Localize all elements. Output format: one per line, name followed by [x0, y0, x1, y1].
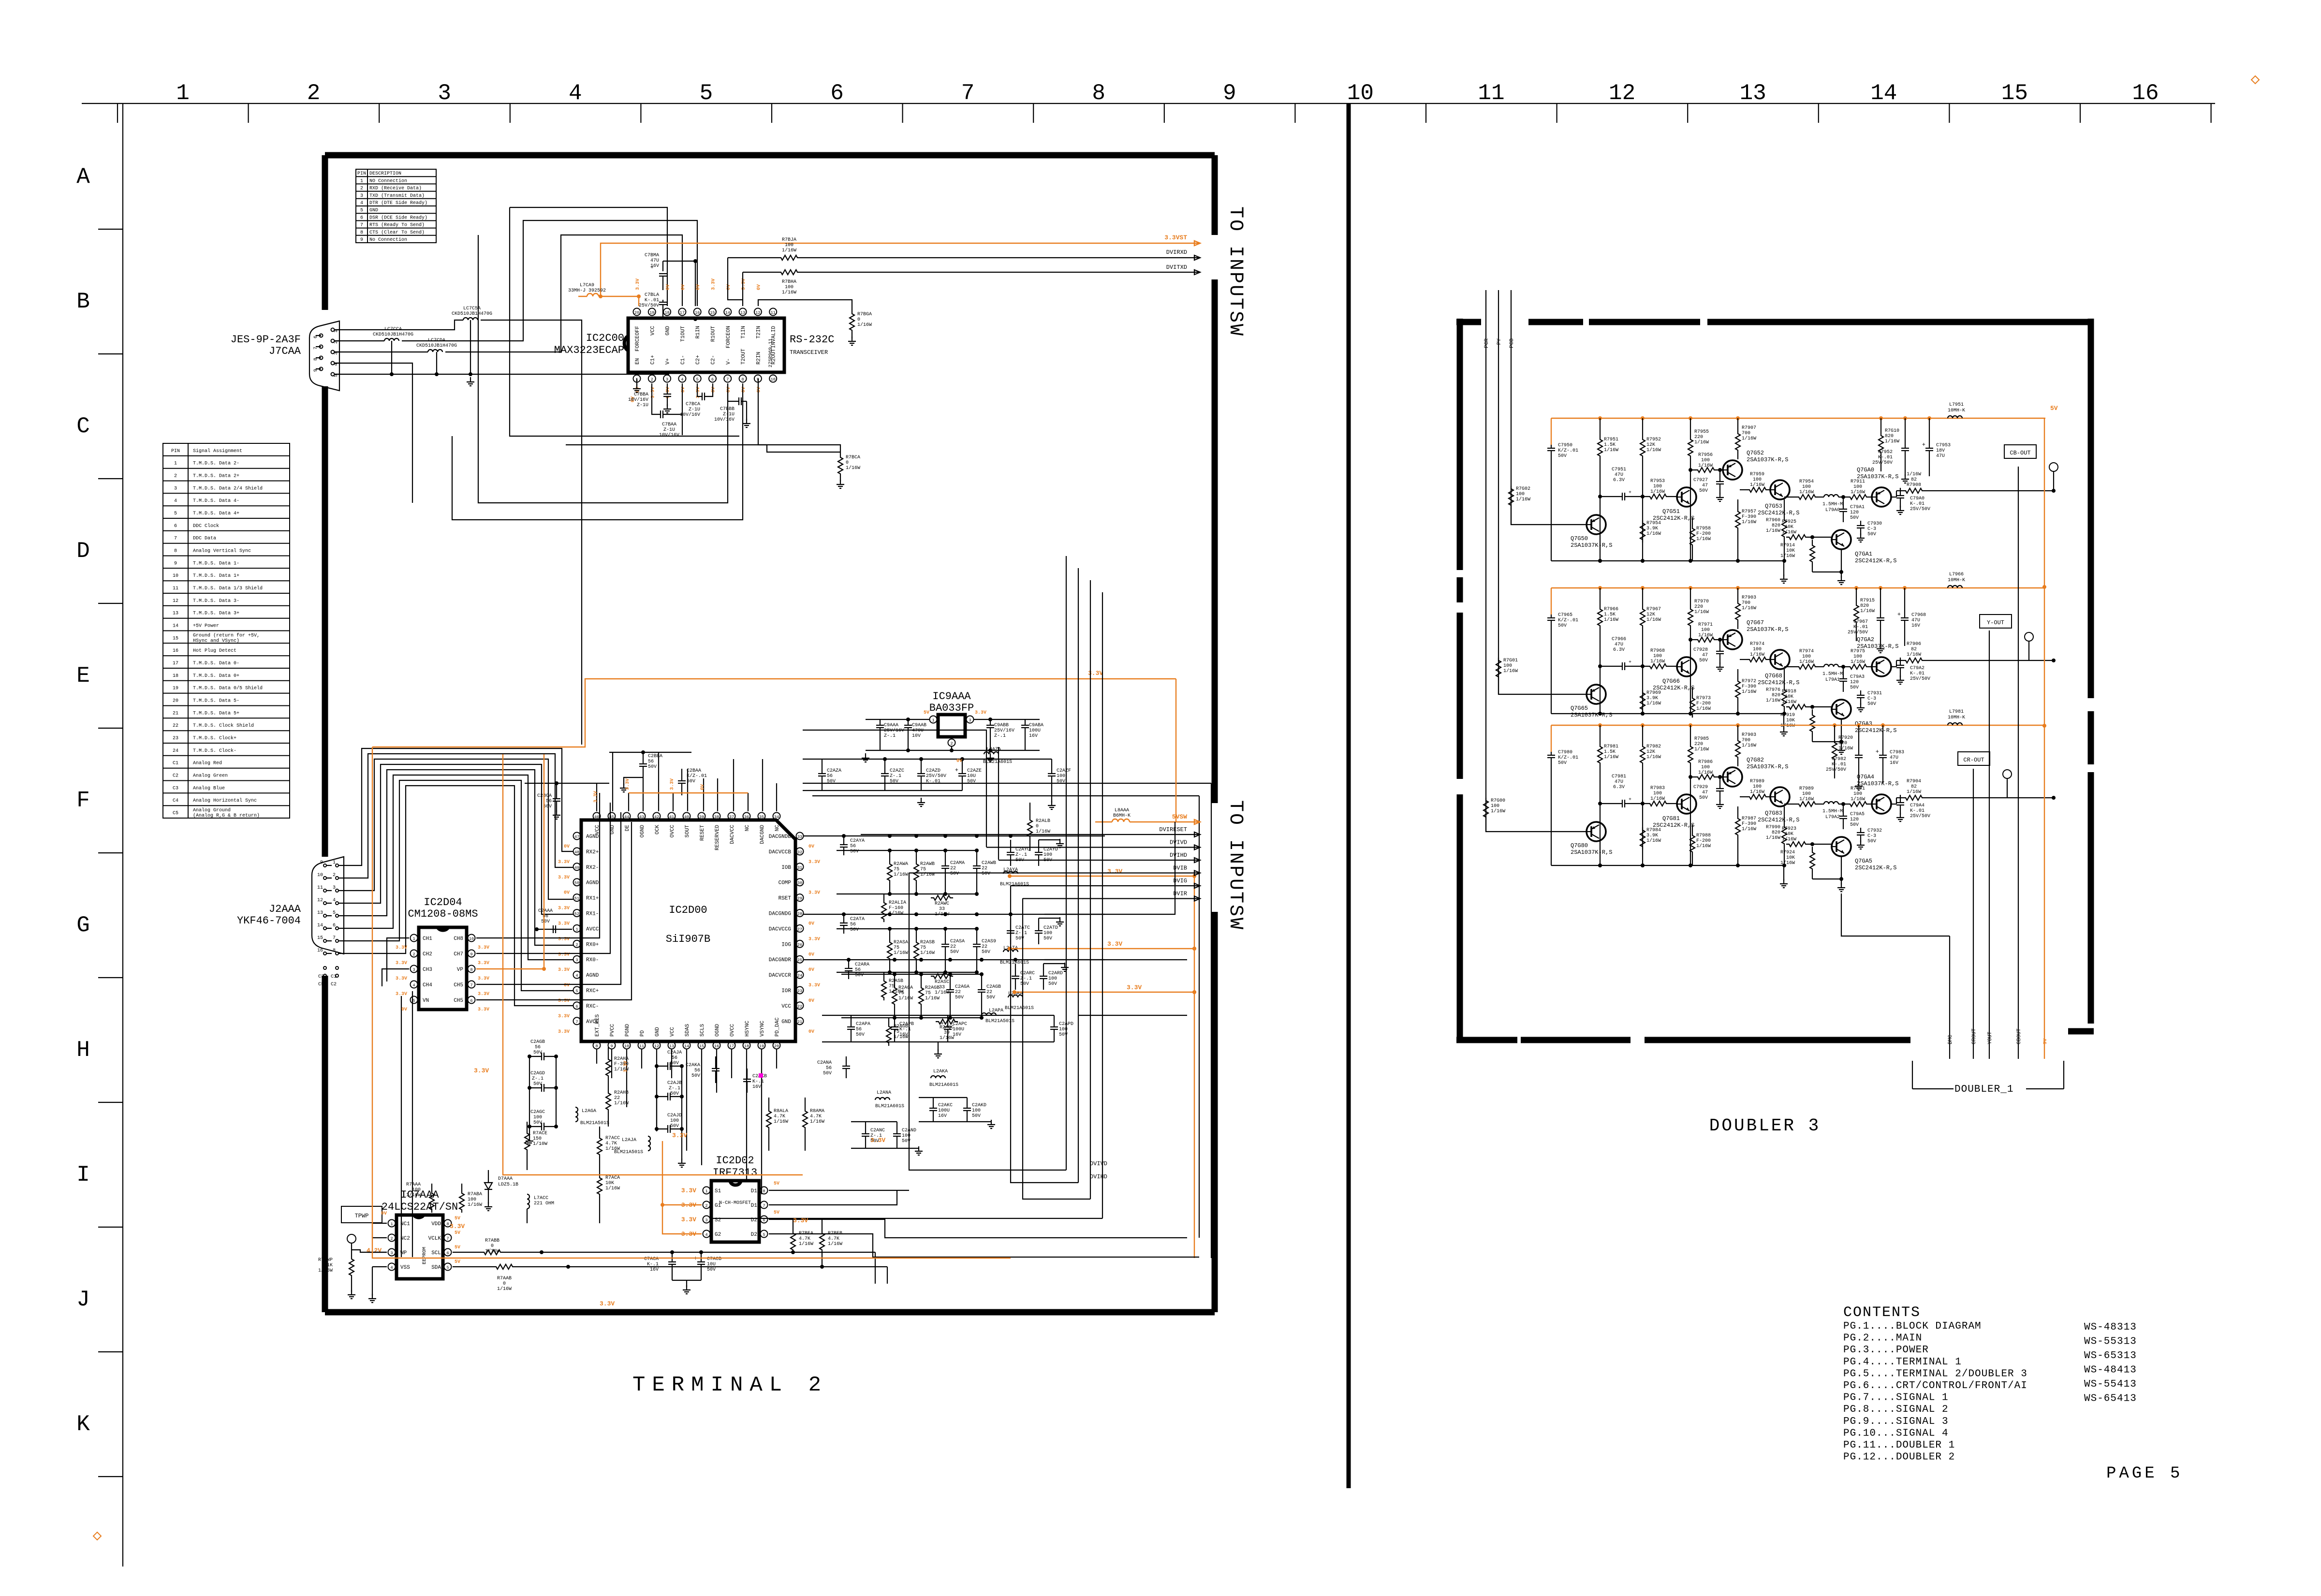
- svg-text:221 OHM: 221 OHM: [534, 1201, 554, 1206]
- svg-text:1.5MH-M: 1.5MH-M: [1822, 809, 1843, 814]
- svg-text:K-.1: K-.1: [647, 1262, 659, 1267]
- svg-text:1/16W: 1/16W: [810, 1119, 824, 1125]
- svg-text:2SC2412K-R,S: 2SC2412K-R,S: [1758, 817, 1799, 823]
- svg-text:NO Connection: NO Connection: [369, 178, 407, 184]
- svg-text:C7981: C7981: [1612, 774, 1626, 779]
- svg-text:K-.01: K-.01: [1878, 455, 1893, 460]
- svg-text:DACGND: DACGND: [760, 825, 765, 844]
- svg-text:100: 100: [1653, 484, 1662, 489]
- svg-text:C4: C4: [173, 798, 178, 804]
- svg-text:21: 21: [173, 711, 178, 716]
- svg-text:50V: 50V: [855, 973, 864, 978]
- svg-text:11: 11: [173, 586, 178, 591]
- svg-text:R2ASA: R2ASA: [894, 940, 908, 945]
- svg-text:C2APC: C2APC: [953, 1022, 967, 1027]
- svg-text:C9AAA: C9AAA: [884, 723, 898, 728]
- svg-text:T.M.D.S. Data 0-: T.M.D.S. Data 0-: [193, 661, 239, 666]
- svg-text:R7ACA: R7ACA: [605, 1175, 620, 1181]
- svg-text:FORCEOFF: FORCEOFF: [635, 326, 641, 351]
- svg-text:30: 30: [797, 881, 802, 886]
- svg-text:Q7G66: Q7G66: [1662, 678, 1680, 685]
- svg-text:33: 33: [939, 985, 945, 990]
- svg-text:10K: 10K: [1785, 525, 1793, 530]
- svg-text:WS-55413: WS-55413: [2084, 1379, 2137, 1390]
- svg-text:33: 33: [939, 907, 945, 912]
- svg-text:INVALID: INVALID: [771, 326, 777, 349]
- svg-text:B: B: [76, 289, 90, 314]
- svg-text:16: 16: [695, 310, 700, 315]
- svg-text:C2-: C2-: [711, 355, 717, 365]
- svg-text:Q7G68: Q7G68: [1765, 673, 1782, 679]
- svg-text:0: 0: [846, 460, 849, 466]
- svg-text:14: 14: [317, 923, 323, 928]
- svg-text:Q7GA0: Q7GA0: [1857, 467, 1874, 473]
- svg-text:C9ABB: C9ABB: [994, 723, 1009, 728]
- svg-text:3.3VST: 3.3VST: [1164, 234, 1187, 241]
- svg-text:C2AKD: C2AKD: [972, 1103, 986, 1108]
- svg-text:CBOUT: CBOUT: [2016, 1028, 2022, 1044]
- svg-text:Analog Red: Analog Red: [193, 761, 222, 766]
- svg-text:+: +: [1629, 797, 1631, 803]
- svg-text:18: 18: [173, 674, 178, 679]
- svg-text:2: 2: [705, 1203, 707, 1208]
- svg-text:IRF7313: IRF7313: [713, 1167, 757, 1179]
- svg-text:C7BAA: C7BAA: [662, 422, 676, 427]
- svg-text:C2AYD: C2AYD: [1043, 847, 1058, 852]
- svg-text:100: 100: [902, 1133, 911, 1139]
- svg-text:Q7G83: Q7G83: [1765, 810, 1782, 817]
- svg-text:3.3V: 3.3V: [600, 1300, 615, 1307]
- svg-text:T.M.D.S. Data 1/3 Shield: T.M.D.S. Data 1/3 Shield: [193, 586, 263, 591]
- svg-text:10: 10: [317, 873, 323, 878]
- svg-text:50V: 50V: [541, 919, 550, 924]
- svg-text:100: 100: [1043, 931, 1052, 936]
- svg-text:DVIRXD: DVIRXD: [1166, 249, 1187, 256]
- svg-text:3.3V: 3.3V: [478, 1007, 489, 1012]
- svg-text:R7974: R7974: [1750, 642, 1764, 647]
- svg-text:100: 100: [1653, 791, 1662, 796]
- svg-text:PVCC: PVCC: [610, 1024, 616, 1037]
- svg-text:D2: D2: [751, 1232, 757, 1238]
- svg-text:220: 220: [1694, 742, 1703, 747]
- svg-text:C2AND: C2AND: [902, 1128, 916, 1133]
- svg-text:R2AGB: R2AGB: [925, 985, 940, 991]
- svg-text:C7965: C7965: [1558, 613, 1572, 618]
- svg-text:DDC Clock: DDC Clock: [193, 523, 219, 529]
- svg-text:3.3V: 3.3V: [670, 778, 675, 790]
- svg-text:Z-.1: Z-.1: [1015, 931, 1027, 936]
- svg-text:1/16W: 1/16W: [799, 1241, 813, 1247]
- svg-text:R7959: R7959: [1750, 472, 1764, 477]
- svg-text:D: D: [76, 539, 90, 564]
- svg-text:3.3V: 3.3V: [623, 1061, 629, 1072]
- svg-text:18V: 18V: [1936, 448, 1945, 454]
- svg-text:R7906: R7906: [1907, 642, 1921, 647]
- svg-text:1/16W: 1/16W: [1694, 609, 1709, 615]
- svg-text:L2AYA: L2AYA: [1003, 867, 1018, 873]
- svg-text:Analog Blue: Analog Blue: [193, 785, 225, 791]
- svg-text:PG.11...DOUBLER 1: PG.11...DOUBLER 1: [1843, 1440, 1955, 1451]
- svg-text:1/16W: 1/16W: [782, 290, 796, 295]
- svg-text:R7970: R7970: [1694, 599, 1709, 604]
- svg-text:10: 10: [1347, 81, 1374, 106]
- svg-text:1/16W: 1/16W: [1838, 746, 1853, 751]
- svg-text:R7BHA: R7BHA: [782, 279, 796, 285]
- svg-text:2SC2412K-R,S: 2SC2412K-R,S: [1855, 557, 1896, 564]
- svg-text:R7954: R7954: [1799, 479, 1814, 484]
- svg-text:50V: 50V: [982, 871, 990, 877]
- svg-text:3.3V: 3.3V: [1107, 868, 1122, 875]
- svg-text:150: 150: [533, 1136, 542, 1142]
- svg-text:RX0+: RX0+: [586, 942, 599, 948]
- svg-text:0V: 0V: [564, 844, 570, 849]
- svg-text:PCB: PCB: [1509, 338, 1515, 348]
- svg-text:R7972: R7972: [1742, 679, 1756, 684]
- svg-text:0V: 0V: [741, 387, 747, 393]
- svg-text:46: 46: [594, 815, 599, 820]
- svg-text:820: 820: [1772, 693, 1780, 698]
- svg-text:4: 4: [333, 898, 336, 903]
- svg-text:A: A: [76, 164, 90, 190]
- svg-text:3.3V: 3.3V: [478, 976, 489, 981]
- svg-text:WS-65413: WS-65413: [2084, 1393, 2137, 1405]
- svg-text:6: 6: [470, 998, 472, 1003]
- svg-text:42: 42: [654, 815, 659, 820]
- svg-text:DOUBLER 3: DOUBLER 3: [1709, 1116, 1821, 1136]
- svg-text:50V: 50V: [533, 1120, 542, 1126]
- svg-text:11: 11: [317, 885, 323, 891]
- svg-text:C-3: C-3: [1867, 527, 1876, 532]
- svg-text:1/16W: 1/16W: [894, 950, 908, 956]
- svg-text:DACVCCB: DACVCCB: [769, 849, 792, 855]
- svg-text:R7985: R7985: [1694, 736, 1709, 742]
- svg-text:Q7G51: Q7G51: [1662, 508, 1680, 515]
- svg-text:K-.01: K-.01: [1853, 625, 1868, 630]
- svg-text:HSYNC: HSYNC: [745, 1021, 750, 1037]
- svg-text:Z-1U: Z-1U: [689, 407, 700, 412]
- svg-text:RX1-: RX1-: [586, 911, 599, 917]
- svg-text:D1: D1: [751, 1188, 758, 1194]
- svg-text:RS-232C: RS-232C: [790, 334, 834, 346]
- svg-text:1/16W: 1/16W: [1742, 519, 1756, 525]
- svg-text:R7G10: R7G10: [1885, 428, 1899, 434]
- svg-text:K: K: [76, 1412, 90, 1437]
- svg-text:+: +: [1922, 441, 1925, 448]
- svg-text:1/16W: 1/16W: [1646, 617, 1661, 623]
- svg-text:WS-65313: WS-65313: [2084, 1350, 2137, 1362]
- svg-text:0: 0: [857, 317, 860, 322]
- svg-text:1/16W: 1/16W: [1696, 536, 1711, 542]
- svg-text:R7989: R7989: [1750, 779, 1764, 784]
- svg-text:R8ALA: R8ALA: [774, 1109, 788, 1114]
- svg-text:SCLS: SCLS: [700, 1024, 705, 1037]
- svg-text:75: 75: [889, 984, 895, 989]
- svg-text:47U: 47U: [1890, 755, 1898, 761]
- svg-text:100: 100: [1653, 654, 1662, 659]
- svg-text:1/16W: 1/16W: [1696, 843, 1711, 849]
- svg-text:1/16W: 1/16W: [1766, 528, 1780, 534]
- svg-text:50V: 50V: [902, 1139, 911, 1144]
- svg-text:0: 0: [1036, 824, 1039, 829]
- svg-text:1/16W: 1/16W: [1694, 439, 1709, 445]
- svg-text:12: 12: [173, 599, 178, 604]
- svg-text:100: 100: [1043, 852, 1052, 858]
- svg-text:2SC2412K-R,S: 2SC2412K-R,S: [1653, 685, 1694, 691]
- svg-text:C7980: C7980: [1558, 750, 1572, 755]
- svg-text:3: 3: [333, 885, 336, 891]
- svg-text:7: 7: [961, 81, 975, 106]
- svg-text:R2ASB: R2ASB: [920, 940, 935, 945]
- svg-text:100: 100: [785, 243, 793, 248]
- svg-text:20: 20: [634, 310, 639, 315]
- svg-text:100: 100: [1048, 976, 1057, 981]
- svg-text:R7903: R7903: [1742, 595, 1756, 600]
- svg-text:9: 9: [470, 952, 472, 957]
- svg-text:7: 7: [726, 377, 729, 382]
- svg-text:24LCS22AT/SN: 24LCS22AT/SN: [382, 1201, 458, 1213]
- svg-text:3.3V: 3.3V: [1127, 984, 1142, 991]
- svg-text:2: 2: [174, 474, 177, 479]
- svg-text:F-390: F-390: [1742, 821, 1756, 827]
- svg-text:16V: 16V: [650, 264, 659, 269]
- svg-text:14: 14: [173, 624, 178, 629]
- svg-text:33MH-J 392592: 33MH-J 392592: [568, 288, 606, 293]
- svg-text:R7924: R7924: [1780, 850, 1795, 855]
- svg-text:C7BBA: C7BBA: [634, 392, 648, 397]
- svg-text:49: 49: [574, 865, 579, 870]
- svg-text:34: 34: [774, 815, 779, 820]
- svg-text:29: 29: [797, 896, 802, 901]
- svg-text:1/16W: 1/16W: [1782, 529, 1796, 535]
- svg-text:B6MH-K: B6MH-K: [1113, 813, 1131, 819]
- svg-text:22: 22: [982, 944, 987, 950]
- svg-text:BLM21A601S: BLM21A601S: [1000, 882, 1029, 887]
- svg-text:220: 220: [1694, 435, 1703, 440]
- svg-text:8: 8: [595, 1044, 598, 1049]
- svg-text:1/16W: 1/16W: [1646, 701, 1661, 706]
- svg-text:C2AZA: C2AZA: [827, 768, 841, 774]
- svg-text:100: 100: [670, 1118, 679, 1124]
- svg-text:6: 6: [360, 215, 363, 220]
- svg-text:50V: 50V: [982, 950, 990, 955]
- svg-text:11: 11: [639, 1044, 644, 1049]
- svg-text:120: 120: [1850, 510, 1859, 515]
- svg-text:PG.1....BLOCK DIAGRAM: PG.1....BLOCK DIAGRAM: [1843, 1321, 1982, 1332]
- svg-text:23: 23: [797, 989, 802, 994]
- svg-text:1/16W: 1/16W: [920, 950, 935, 956]
- svg-text:PG.7....SIGNAL 1: PG.7....SIGNAL 1: [1843, 1392, 1949, 1404]
- svg-text:10K: 10K: [1785, 694, 1793, 700]
- svg-text:C2AAA: C2AAA: [538, 908, 553, 914]
- svg-text:15: 15: [2001, 81, 2028, 106]
- svg-text:K-.01: K-.01: [1910, 501, 1924, 507]
- svg-text:T.M.D.S. Data 5+: T.M.D.S. Data 5+: [193, 711, 239, 716]
- svg-text:VDD: VDD: [431, 1221, 441, 1227]
- svg-text:35: 35: [759, 815, 764, 820]
- svg-text:C2AZF: C2AZF: [1057, 768, 1071, 774]
- svg-text:6: 6: [333, 923, 336, 928]
- svg-text:6: 6: [575, 1004, 578, 1009]
- svg-text:C7967: C7967: [1853, 619, 1868, 625]
- svg-text:50V: 50V: [1699, 795, 1708, 801]
- svg-text:NC: NC: [775, 825, 780, 832]
- svg-text:0V: 0V: [401, 1007, 407, 1012]
- svg-text:56: 56: [535, 1045, 541, 1050]
- svg-text:C2AZD: C2AZD: [926, 768, 940, 774]
- svg-text:C7ACB: C7ACB: [707, 1257, 721, 1262]
- svg-text:22: 22: [173, 723, 178, 729]
- svg-text:Hot Plug Detect: Hot Plug Detect: [193, 648, 236, 654]
- svg-text:10: 10: [624, 1044, 629, 1049]
- svg-text:100: 100: [1802, 654, 1811, 659]
- svg-text:2: 2: [651, 377, 653, 382]
- svg-text:1/16W: 1/16W: [605, 1146, 620, 1152]
- svg-text:47U: 47U: [1936, 454, 1945, 459]
- svg-text:R8AMA: R8AMA: [810, 1109, 824, 1114]
- svg-text:100: 100: [1701, 628, 1710, 633]
- svg-text:1/16W: 1/16W: [1646, 838, 1661, 844]
- svg-text:1/16W: 1/16W: [1503, 668, 1518, 674]
- svg-text:C2AGA: C2AGA: [955, 984, 970, 990]
- svg-text:10MH-K: 10MH-K: [1948, 408, 1965, 413]
- svg-text:Z-.1: Z-.1: [1020, 976, 1032, 981]
- svg-text:R7G00: R7G00: [1491, 798, 1505, 804]
- svg-text:10K: 10K: [1786, 855, 1795, 861]
- svg-text:Y-OUT: Y-OUT: [1987, 619, 2004, 626]
- svg-text:DOUBLER_1: DOUBLER_1: [1954, 1084, 2013, 1095]
- svg-text:D2: D2: [751, 1217, 757, 1223]
- svg-text:56: 56: [826, 1066, 832, 1071]
- svg-text:10V/16V: 10V/16V: [714, 417, 734, 423]
- svg-text:2SC2412K-R,S: 2SC2412K-R,S: [1855, 864, 1896, 871]
- svg-text:1/16W: 1/16W: [1750, 482, 1764, 488]
- svg-text:IC2C00: IC2C00: [586, 332, 624, 344]
- svg-text:3.3V: 3.3V: [450, 1223, 465, 1230]
- svg-text:3.3V: 3.3V: [558, 1014, 570, 1019]
- svg-text:OCK: OCK: [655, 825, 661, 835]
- svg-text:100: 100: [1853, 791, 1862, 797]
- svg-text:2: 2: [412, 952, 415, 957]
- svg-text:1/16W: 1/16W: [1604, 617, 1618, 623]
- svg-text:6.3V: 6.3V: [1613, 785, 1625, 790]
- svg-text:1/16W: 1/16W: [318, 1268, 333, 1274]
- svg-text:7: 7: [763, 1203, 765, 1208]
- svg-text:C2AKA: C2AKA: [686, 1063, 700, 1068]
- svg-text:2: 2: [390, 1236, 393, 1241]
- svg-text:50V: 50V: [1558, 623, 1567, 629]
- svg-text:R2AWC: R2AWC: [935, 901, 949, 907]
- svg-text:DVIRESET: DVIRESET: [1159, 826, 1187, 833]
- svg-text:100U: 100U: [953, 1027, 964, 1032]
- svg-text:G2: G2: [715, 1232, 721, 1238]
- svg-text:C2ATA: C2ATA: [850, 917, 865, 922]
- svg-text:No Connection: No Connection: [369, 237, 407, 243]
- svg-text:50V: 50V: [986, 995, 995, 1000]
- svg-text:8: 8: [360, 230, 363, 235]
- svg-text:BLM21A601S: BLM21A601S: [1005, 1006, 1034, 1011]
- svg-text:1/16W: 1/16W: [1696, 706, 1711, 712]
- svg-text:1/16W: 1/16W: [1851, 489, 1865, 495]
- svg-text:C7929: C7929: [1693, 785, 1708, 790]
- svg-text:3.3V: 3.3V: [741, 278, 747, 290]
- svg-text:C2AYA: C2AYA: [850, 838, 865, 844]
- svg-text:9: 9: [1223, 81, 1236, 106]
- svg-text:DACVCC: DACVCC: [730, 825, 735, 844]
- svg-text:12K: 12K: [1646, 749, 1655, 755]
- svg-text:12: 12: [755, 310, 760, 315]
- svg-text:C7952: C7952: [1878, 450, 1893, 455]
- svg-text:C2+: C2+: [695, 355, 701, 365]
- svg-text:J7CAA: J7CAA: [269, 345, 301, 357]
- svg-text:1/16W: 1/16W: [406, 1192, 421, 1198]
- svg-text:16V: 16V: [650, 1267, 659, 1273]
- svg-text:11: 11: [1478, 81, 1504, 106]
- svg-text:R7973: R7973: [1696, 696, 1711, 701]
- svg-text:16V: 16V: [899, 1032, 908, 1038]
- svg-text:100: 100: [1503, 663, 1512, 669]
- svg-text:1/16W: 1/16W: [1750, 652, 1764, 658]
- svg-text:14: 14: [725, 310, 730, 315]
- svg-text:47: 47: [1702, 790, 1708, 795]
- svg-text:4: 4: [575, 973, 578, 978]
- svg-text:75: 75: [925, 991, 931, 996]
- svg-text:75: 75: [920, 945, 926, 951]
- svg-text:3.3V: 3.3V: [396, 945, 407, 951]
- svg-text:12: 12: [654, 1044, 659, 1049]
- svg-text:3: 3: [412, 967, 415, 972]
- svg-text:TXD (Transmit Data): TXD (Transmit Data): [369, 193, 425, 199]
- svg-text:21: 21: [797, 1020, 802, 1025]
- svg-text:CB-OUT: CB-OUT: [2010, 450, 2030, 456]
- svg-text:9V: 9V: [2043, 1039, 2048, 1044]
- svg-text:1/16W: 1/16W: [1694, 747, 1709, 752]
- svg-text:1/16W: 1/16W: [1036, 829, 1050, 835]
- svg-text:Z-.1: Z-.1: [884, 733, 896, 739]
- svg-text:3.3V: 3.3V: [975, 710, 986, 716]
- svg-text:SiI907B: SiI907B: [666, 933, 710, 945]
- svg-text:1/16W: 1/16W: [1799, 659, 1814, 665]
- svg-text:Z-1U: Z-1U: [723, 412, 734, 417]
- svg-text:23: 23: [173, 736, 178, 741]
- svg-text:5V: 5V: [774, 1210, 779, 1215]
- svg-text:1/16W: 1/16W: [1646, 531, 1661, 537]
- svg-text:50V: 50V: [1867, 839, 1876, 844]
- svg-text:C2AWB: C2AWB: [982, 861, 996, 866]
- svg-text:EEPROM: EEPROM: [422, 1247, 427, 1264]
- svg-text:56: 56: [672, 1055, 677, 1061]
- svg-text:14: 14: [684, 1044, 689, 1049]
- svg-text:DACVCCR: DACVCCR: [769, 973, 792, 979]
- svg-text:R7988: R7988: [1696, 833, 1711, 838]
- svg-text:100: 100: [1753, 647, 1762, 652]
- svg-text:T.M.D.S. Data 4+: T.M.D.S. Data 4+: [193, 511, 239, 516]
- svg-text:16V: 16V: [1890, 761, 1898, 766]
- svg-text:39: 39: [944, 1030, 950, 1036]
- svg-text:L7951: L7951: [1949, 402, 1964, 408]
- svg-text:R7976: R7976: [1766, 688, 1780, 693]
- svg-text:25V/50V: 25V/50V: [926, 773, 946, 779]
- svg-text:50V: 50V: [1043, 936, 1052, 941]
- svg-text:VN: VN: [423, 998, 429, 1004]
- svg-text:C-3: C-3: [1867, 696, 1876, 702]
- svg-text:12K: 12K: [1646, 442, 1655, 448]
- svg-text:V-: V-: [726, 358, 732, 365]
- svg-text:R7G01: R7G01: [1503, 658, 1518, 663]
- svg-text:9: 9: [610, 1044, 613, 1049]
- svg-text:4.7K: 4.7K: [828, 1236, 839, 1242]
- svg-text:4: 4: [681, 377, 683, 382]
- svg-text:F-200: F-200: [1696, 701, 1711, 706]
